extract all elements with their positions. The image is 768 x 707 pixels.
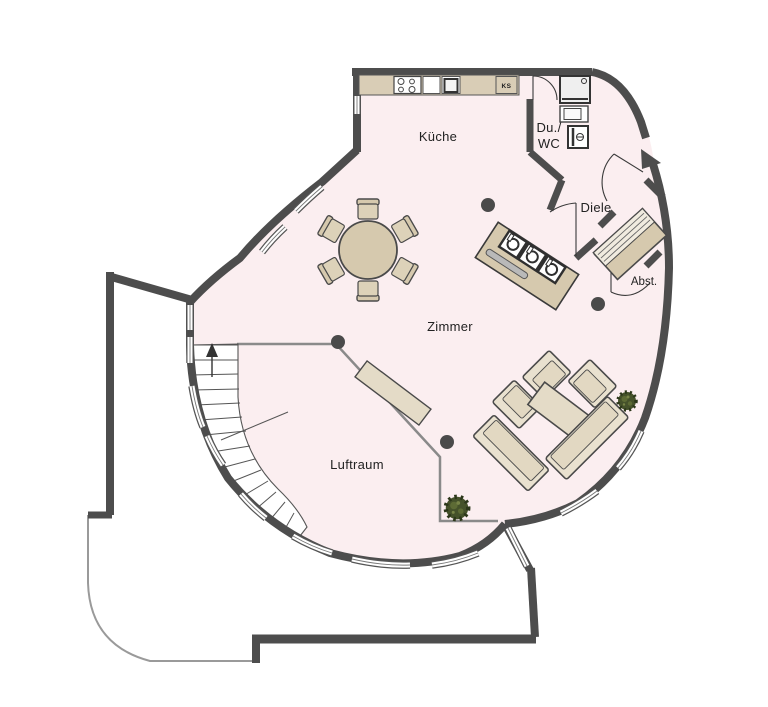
washbasin-icon [560, 106, 588, 122]
plant-icon [446, 497, 469, 520]
room-label-zimmer: Zimmer [427, 319, 473, 334]
fridge-label: KS [501, 83, 511, 90]
stove-icon [394, 77, 421, 94]
sink-icon [423, 77, 460, 94]
shower-icon [560, 76, 590, 103]
dining-chair [357, 199, 379, 219]
toilet-icon [568, 126, 588, 148]
floor-plan-page: KS [0, 0, 768, 707]
kitchen-counter: KS [359, 75, 519, 95]
room-label-duwc-1: Du./ [536, 120, 561, 135]
dining-table [339, 221, 397, 279]
column-dot [331, 335, 345, 349]
plant-icon [618, 392, 636, 410]
fridge-box: KS [496, 77, 517, 94]
room-label-diele: Diele [580, 200, 611, 215]
column-dot [591, 297, 605, 311]
room-label-duwc-2: WC [538, 136, 560, 151]
column-dot [440, 435, 454, 449]
dining-chair [357, 281, 379, 301]
room-label-abst: Abst. [631, 276, 657, 288]
room-label-luftraum: Luftraum [330, 457, 384, 472]
column-dot [481, 198, 495, 212]
room-label-kueche: Küche [419, 129, 457, 144]
floor-plan-drawing: KS [0, 0, 768, 707]
